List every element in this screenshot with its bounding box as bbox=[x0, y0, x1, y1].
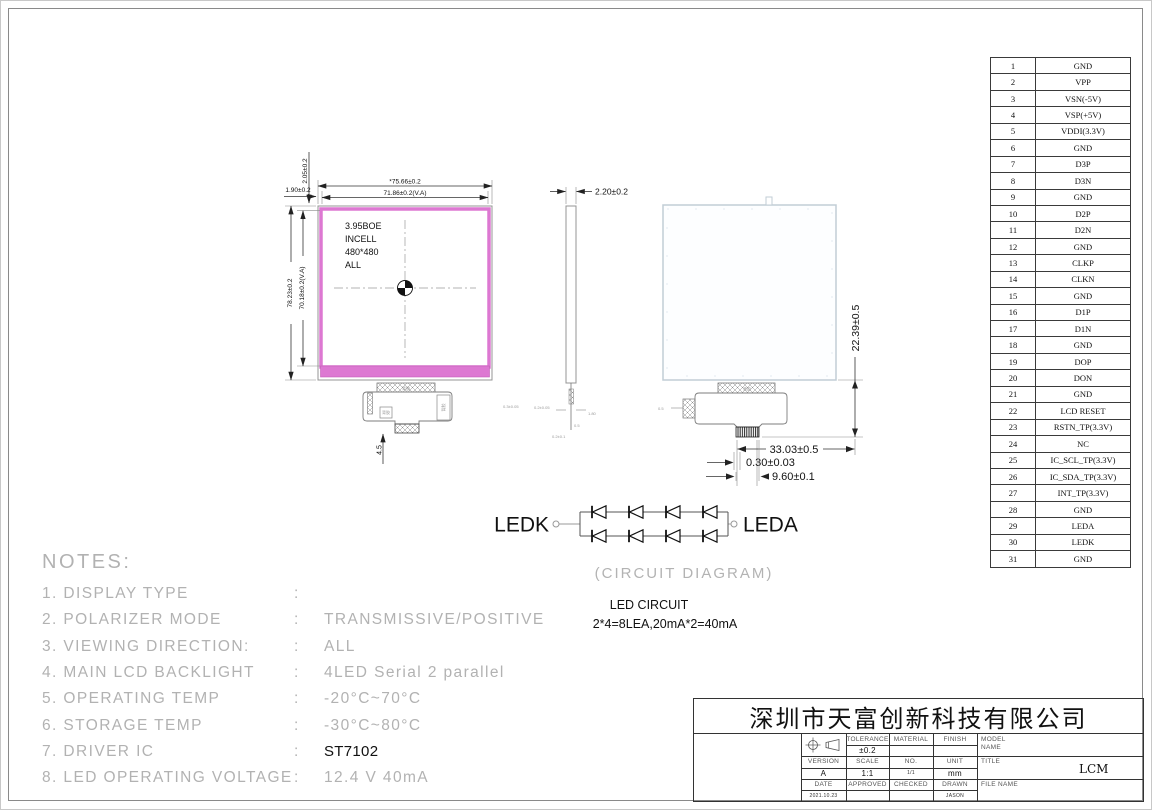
front-view: 3.95BOE INCELL 480*480 ALL *75.66±0.2 71… bbox=[284, 152, 519, 464]
pin-number-cell: 16 bbox=[991, 304, 1036, 320]
micro-dim-6: 0.5 bbox=[658, 406, 664, 411]
side-panel-outline bbox=[566, 206, 576, 383]
dim-va-width: 71.86±0.2(V.A) bbox=[383, 190, 426, 197]
unit-label: UNIT bbox=[933, 756, 977, 768]
pin-table-row: 2 VPP bbox=[991, 74, 1131, 90]
pin-table-row: 24 NC bbox=[991, 436, 1131, 452]
note-row: 5. OPERATING TEMP : -20°C~70°C bbox=[42, 686, 602, 712]
pin-table-row: 11 D2N bbox=[991, 222, 1131, 238]
title-value: LCM bbox=[1079, 762, 1108, 776]
dim-va-height: 70.18±0.2(V.A) bbox=[299, 266, 306, 309]
note-label: 2. POLARIZER MODE bbox=[42, 611, 294, 629]
pin-name-cell: DOP bbox=[1036, 353, 1131, 369]
pin-name-cell: D2P bbox=[1036, 205, 1131, 221]
title-block: 深圳市天富创新科技有限公司 TOLERANCE ±0.2 MATERIAL FI… bbox=[693, 698, 1144, 802]
diode-icon bbox=[592, 530, 606, 542]
pin-name-cell: NC bbox=[1036, 436, 1131, 452]
dim-top-gap: 2.05±0.2 bbox=[302, 158, 309, 184]
note-row: 1. DISPLAY TYPE : bbox=[42, 581, 602, 607]
leda-terminal-label: LEDA bbox=[743, 514, 798, 537]
note-value: TRANSMISSIVE/POSITIVE bbox=[324, 611, 602, 629]
pin-table-row: 1 GND bbox=[991, 58, 1131, 74]
back-fpc-tag: 背胶 bbox=[743, 386, 751, 392]
no-value: 1/1 bbox=[889, 768, 933, 780]
pin-number-cell: 28 bbox=[991, 501, 1036, 517]
pin-number-cell: 20 bbox=[991, 370, 1036, 386]
note-colon: : bbox=[294, 717, 324, 735]
micro-dim-4: 0.5 bbox=[574, 423, 580, 428]
note-label: 4. MAIN LCD BACKLIGHT bbox=[42, 664, 294, 682]
diode-icon bbox=[703, 506, 717, 518]
pin-number-cell: 1 bbox=[991, 58, 1036, 74]
pin-number-cell: 14 bbox=[991, 271, 1036, 287]
pin-name-cell: DON bbox=[1036, 370, 1131, 386]
pin-number-cell: 19 bbox=[991, 353, 1036, 369]
back-panel-tab bbox=[766, 197, 772, 205]
pin-table-row: 5 VDDI(3.3V) bbox=[991, 123, 1131, 139]
pin-number-cell: 21 bbox=[991, 386, 1036, 402]
file-name-label: FILE NAME bbox=[978, 779, 1144, 802]
pin-name-cell: INT_TP(3.3V) bbox=[1036, 485, 1131, 501]
pin-name-cell: VDDI(3.3V) bbox=[1036, 123, 1131, 139]
pin-number-cell: 8 bbox=[991, 173, 1036, 189]
note-colon: : bbox=[294, 638, 324, 656]
pin-number-cell: 7 bbox=[991, 156, 1036, 172]
pin-table-row: 22 LCD RESET bbox=[991, 403, 1131, 419]
pin-table-row: 16 D1P bbox=[991, 304, 1131, 320]
left-terminal-node bbox=[553, 521, 559, 527]
scale-value: 1:1 bbox=[846, 768, 889, 780]
version-label: VERSION bbox=[801, 756, 846, 768]
pin-name-cell: GND bbox=[1036, 288, 1131, 304]
pin-table-row: 23 RSTN_TP(3.3V) bbox=[991, 419, 1131, 435]
no-label: NO. bbox=[889, 756, 933, 768]
circuit-diagram-caption: (CIRCUIT DIAGRAM) bbox=[595, 565, 774, 582]
pin-number-cell: 22 bbox=[991, 403, 1036, 419]
pin-name-cell: RSTN_TP(3.3V) bbox=[1036, 419, 1131, 435]
pin-table-row: 8 D3N bbox=[991, 173, 1131, 189]
diode-icon bbox=[703, 530, 717, 542]
note-row: 8. LED OPERATING VOLTAGE : 12.4 V 40mA bbox=[42, 765, 602, 791]
notes-list: 1. DISPLAY TYPE : 2. POLARIZER MODE : TR… bbox=[42, 581, 602, 791]
pin-number-cell: 4 bbox=[991, 107, 1036, 123]
panel-label-line4: ALL bbox=[345, 260, 361, 270]
pin-name-cell: D1P bbox=[1036, 304, 1131, 320]
scale-label: SCALE bbox=[846, 756, 889, 768]
pin-name-cell: GND bbox=[1036, 551, 1131, 567]
note-label: 7. DRIVER IC bbox=[42, 743, 294, 761]
micro-dim-1: 0.3±0.05 bbox=[503, 404, 519, 409]
title-label: TITLE bbox=[978, 756, 1144, 781]
pin-table-row: 17 D1N bbox=[991, 321, 1131, 337]
pin-number-cell: 9 bbox=[991, 189, 1036, 205]
pin-name-cell: VPP bbox=[1036, 74, 1131, 90]
note-value: ST7102 bbox=[324, 743, 602, 760]
date-label: DATE bbox=[801, 779, 846, 790]
pin-table-row: 28 GND bbox=[991, 501, 1131, 517]
pin-table-row: 4 VSP(+5V) bbox=[991, 107, 1131, 123]
dim-left-gap: 1.90±0.2 bbox=[285, 187, 311, 194]
pin-name-cell: IC_SCL_TP(3.3V) bbox=[1036, 452, 1131, 468]
drawing-sheet: { "front_view": { "label": ["3.95BOE", "… bbox=[0, 0, 1152, 810]
note-colon: : bbox=[294, 611, 324, 629]
side-view: 2.20±0.2 0.2±0.05 1.80 0.5 0.2±0.1 bbox=[534, 187, 628, 440]
checked-label: CHECKED bbox=[889, 779, 933, 790]
panel-label-line2: INCELL bbox=[345, 234, 377, 244]
diode-icon bbox=[629, 506, 643, 518]
diode-icon bbox=[629, 530, 643, 542]
note-value: -30°C~80°C bbox=[324, 717, 602, 735]
micro-dim-5: 0.2±0.1 bbox=[552, 434, 566, 439]
pin-name-cell: VSP(+5V) bbox=[1036, 107, 1131, 123]
version-value: A bbox=[801, 768, 846, 780]
back-view: 背胶 0.5 22.39±0.5 33.03±0.5 0.30±0.03 bbox=[658, 197, 863, 486]
notes-section: NOTES: 1. DISPLAY TYPE : 2. POLARIZER MO… bbox=[42, 551, 602, 791]
pin-table: 1 GND 2 VPP 3 VSN(-5V) 4 VSP(+5V) 5 VDDI… bbox=[990, 57, 1131, 568]
pin-number-cell: 23 bbox=[991, 419, 1036, 435]
ledk-terminal-label: LEDK bbox=[494, 514, 549, 537]
pin-number-cell: 24 bbox=[991, 436, 1036, 452]
date-value: 2021.10.23 bbox=[801, 790, 846, 801]
pin-table-row: 3 VSN(-5V) bbox=[991, 90, 1131, 106]
note-value: 4LED Serial 2 parallel bbox=[324, 664, 602, 682]
approved-label: APPROVED bbox=[846, 779, 889, 790]
pin-table-row: 13 CLKP bbox=[991, 255, 1131, 271]
pin-table-row: 19 DOP bbox=[991, 353, 1131, 369]
pin-table-row: 12 GND bbox=[991, 238, 1131, 254]
micro-dim-2: 0.2±0.05 bbox=[534, 405, 550, 410]
pin-table-row: 7 D3P bbox=[991, 156, 1131, 172]
back-fpc: 背胶 0.5 bbox=[658, 383, 787, 437]
projection-symbol bbox=[802, 735, 845, 755]
note-label: 6. STORAGE TEMP bbox=[42, 717, 294, 735]
centroid-mark-icon bbox=[398, 281, 413, 296]
finish-label: FINISH bbox=[933, 734, 977, 745]
note-row: 7. DRIVER IC : ST7102 bbox=[42, 739, 602, 765]
pin-name-cell: D3N bbox=[1036, 173, 1131, 189]
front-fpc: 背胶 背胶 背胶 4.5 0.3±0.05 bbox=[363, 383, 519, 464]
pin-name-cell: D1N bbox=[1036, 321, 1131, 337]
pin-table-row: 10 D2P bbox=[991, 205, 1131, 221]
note-row: 4. MAIN LCD BACKLIGHT : 4LED Serial 2 pa… bbox=[42, 660, 602, 686]
pin-table-row: 18 GND bbox=[991, 337, 1131, 353]
pin-name-cell: GND bbox=[1036, 501, 1131, 517]
pin-number-cell: 6 bbox=[991, 140, 1036, 156]
pin-name-cell: D2N bbox=[1036, 222, 1131, 238]
pin-table-row: 14 CLKN bbox=[991, 271, 1131, 287]
pin-name-cell: GND bbox=[1036, 337, 1131, 353]
note-label: 1. DISPLAY TYPE bbox=[42, 585, 294, 603]
drawn-label: DRAWN bbox=[933, 779, 977, 790]
pin-number-cell: 29 bbox=[991, 518, 1036, 534]
note-colon: : bbox=[294, 769, 324, 787]
pin-number-cell: 11 bbox=[991, 222, 1036, 238]
ledge-pink-band bbox=[321, 366, 490, 377]
pin-table-body: 1 GND 2 VPP 3 VSN(-5V) 4 VSP(+5V) 5 VDDI… bbox=[991, 58, 1131, 568]
diode-icon bbox=[666, 530, 680, 542]
pin-table-row: 31 GND bbox=[991, 551, 1131, 567]
pin-number-cell: 10 bbox=[991, 205, 1036, 221]
pin-number-cell: 13 bbox=[991, 255, 1036, 271]
panel-label-line3: 480*480 bbox=[345, 247, 379, 257]
company-name: 深圳市天富创新科技有限公司 bbox=[694, 699, 1143, 734]
led-circuit-title: LED CIRCUIT bbox=[610, 598, 689, 612]
pin-number-cell: 27 bbox=[991, 485, 1036, 501]
pin-table-row: 27 INT_TP(3.3V) bbox=[991, 485, 1131, 501]
pin-number-cell: 15 bbox=[991, 288, 1036, 304]
pin-name-cell: GND bbox=[1036, 58, 1131, 74]
pin-number-cell: 12 bbox=[991, 238, 1036, 254]
dim-tail-width: 33.03±0.5 bbox=[770, 444, 819, 456]
pin-name-cell: LEDA bbox=[1036, 518, 1131, 534]
pin-number-cell: 25 bbox=[991, 452, 1036, 468]
model-name-label: MODEL NAME bbox=[978, 734, 1144, 757]
dim-tail-height: 22.39±0.5 bbox=[850, 305, 862, 352]
note-colon: : bbox=[294, 743, 324, 761]
fpc-tag-small: 背胶 bbox=[382, 409, 390, 415]
dim-connector-width: 9.60±0.1 bbox=[772, 471, 815, 483]
note-row: 2. POLARIZER MODE : TRANSMISSIVE/POSITIV… bbox=[42, 607, 602, 633]
dim-fpc-drop: 4.5 bbox=[377, 445, 384, 455]
pin-table-row: 26 IC_SDA_TP(3.3V) bbox=[991, 468, 1131, 484]
back-connector bbox=[736, 427, 759, 437]
pin-number-cell: 30 bbox=[991, 534, 1036, 550]
pin-name-cell: GND bbox=[1036, 386, 1131, 402]
pin-number-cell: 18 bbox=[991, 337, 1036, 353]
pin-table-row: 9 GND bbox=[991, 189, 1131, 205]
tolerance-value: ±0.2 bbox=[846, 745, 889, 756]
back-panel-outline bbox=[663, 205, 836, 380]
pin-name-cell: CLKP bbox=[1036, 255, 1131, 271]
diode-icon bbox=[666, 506, 680, 518]
pin-table-row: 29 LEDA bbox=[991, 518, 1131, 534]
pin-table-row: 21 GND bbox=[991, 386, 1131, 402]
title-block-grid: TOLERANCE ±0.2 MATERIAL FINISH MODEL NAM… bbox=[694, 734, 1143, 801]
pin-name-cell: GND bbox=[1036, 238, 1131, 254]
note-value: 12.4 V 40mA bbox=[324, 769, 602, 787]
dim-outer-width: *75.66±0.2 bbox=[389, 179, 421, 186]
drawn-value: JASON bbox=[933, 790, 977, 801]
pin-table-row: 6 GND bbox=[991, 140, 1131, 156]
dim-thickness: 2.20±0.2 bbox=[595, 187, 628, 197]
pin-table-row: 15 GND bbox=[991, 288, 1131, 304]
fpc-adhesive-tag: 背胶 bbox=[402, 385, 410, 391]
pin-name-cell: IC_SDA_TP(3.3V) bbox=[1036, 468, 1131, 484]
tolerance-label: TOLERANCE bbox=[846, 734, 889, 745]
diode-icon bbox=[592, 506, 606, 518]
micro-dim-3: 1.80 bbox=[588, 411, 597, 416]
pin-name-cell: LEDK bbox=[1036, 534, 1131, 550]
note-colon: : bbox=[294, 585, 324, 603]
pin-number-cell: 2 bbox=[991, 74, 1036, 90]
pin-table-row: 25 IC_SCL_TP(3.3V) bbox=[991, 452, 1131, 468]
note-value: ALL bbox=[324, 638, 602, 656]
note-label: 8. LED OPERATING VOLTAGE bbox=[42, 769, 294, 787]
pin-table-row: 30 LEDK bbox=[991, 534, 1131, 550]
pin-table-row: 20 DON bbox=[991, 370, 1131, 386]
panel-label-line1: 3.95BOE bbox=[345, 221, 382, 231]
right-terminal-node bbox=[731, 521, 737, 527]
note-label: 5. OPERATING TEMP bbox=[42, 690, 294, 708]
pin-number-cell: 26 bbox=[991, 468, 1036, 484]
pin-number-cell: 31 bbox=[991, 551, 1036, 567]
pin-name-cell: D3P bbox=[1036, 156, 1131, 172]
material-label: MATERIAL bbox=[889, 734, 933, 745]
pin-name-cell: VSN(-5V) bbox=[1036, 90, 1131, 106]
note-row: 6. STORAGE TEMP : -30°C~80°C bbox=[42, 712, 602, 738]
pin-number-cell: 17 bbox=[991, 321, 1036, 337]
pin-name-cell: CLKN bbox=[1036, 271, 1131, 287]
note-label: 3. VIEWING DIRECTION: bbox=[42, 638, 294, 656]
pin-number-cell: 3 bbox=[991, 90, 1036, 106]
pin-name-cell: GND bbox=[1036, 189, 1131, 205]
fpc-tag-right: 背胶 bbox=[440, 404, 446, 412]
note-colon: : bbox=[294, 664, 324, 682]
pin-number-cell: 5 bbox=[991, 123, 1036, 139]
unit-value: mm bbox=[933, 768, 977, 780]
note-row: 3. VIEWING DIRECTION: : ALL bbox=[42, 634, 602, 660]
dim-outer-height: 78.23±0.2 bbox=[287, 278, 294, 307]
front-connector bbox=[395, 424, 419, 433]
led-circuit-formula: 2*4=8LEA,20mA*2=40mA bbox=[593, 617, 738, 631]
note-value: -20°C~70°C bbox=[324, 690, 602, 708]
pin-name-cell: GND bbox=[1036, 140, 1131, 156]
note-colon: : bbox=[294, 690, 324, 708]
dim-pin-pitch: 0.30±0.03 bbox=[746, 457, 795, 469]
notes-heading: NOTES: bbox=[42, 551, 602, 574]
pin-name-cell: LCD RESET bbox=[1036, 403, 1131, 419]
